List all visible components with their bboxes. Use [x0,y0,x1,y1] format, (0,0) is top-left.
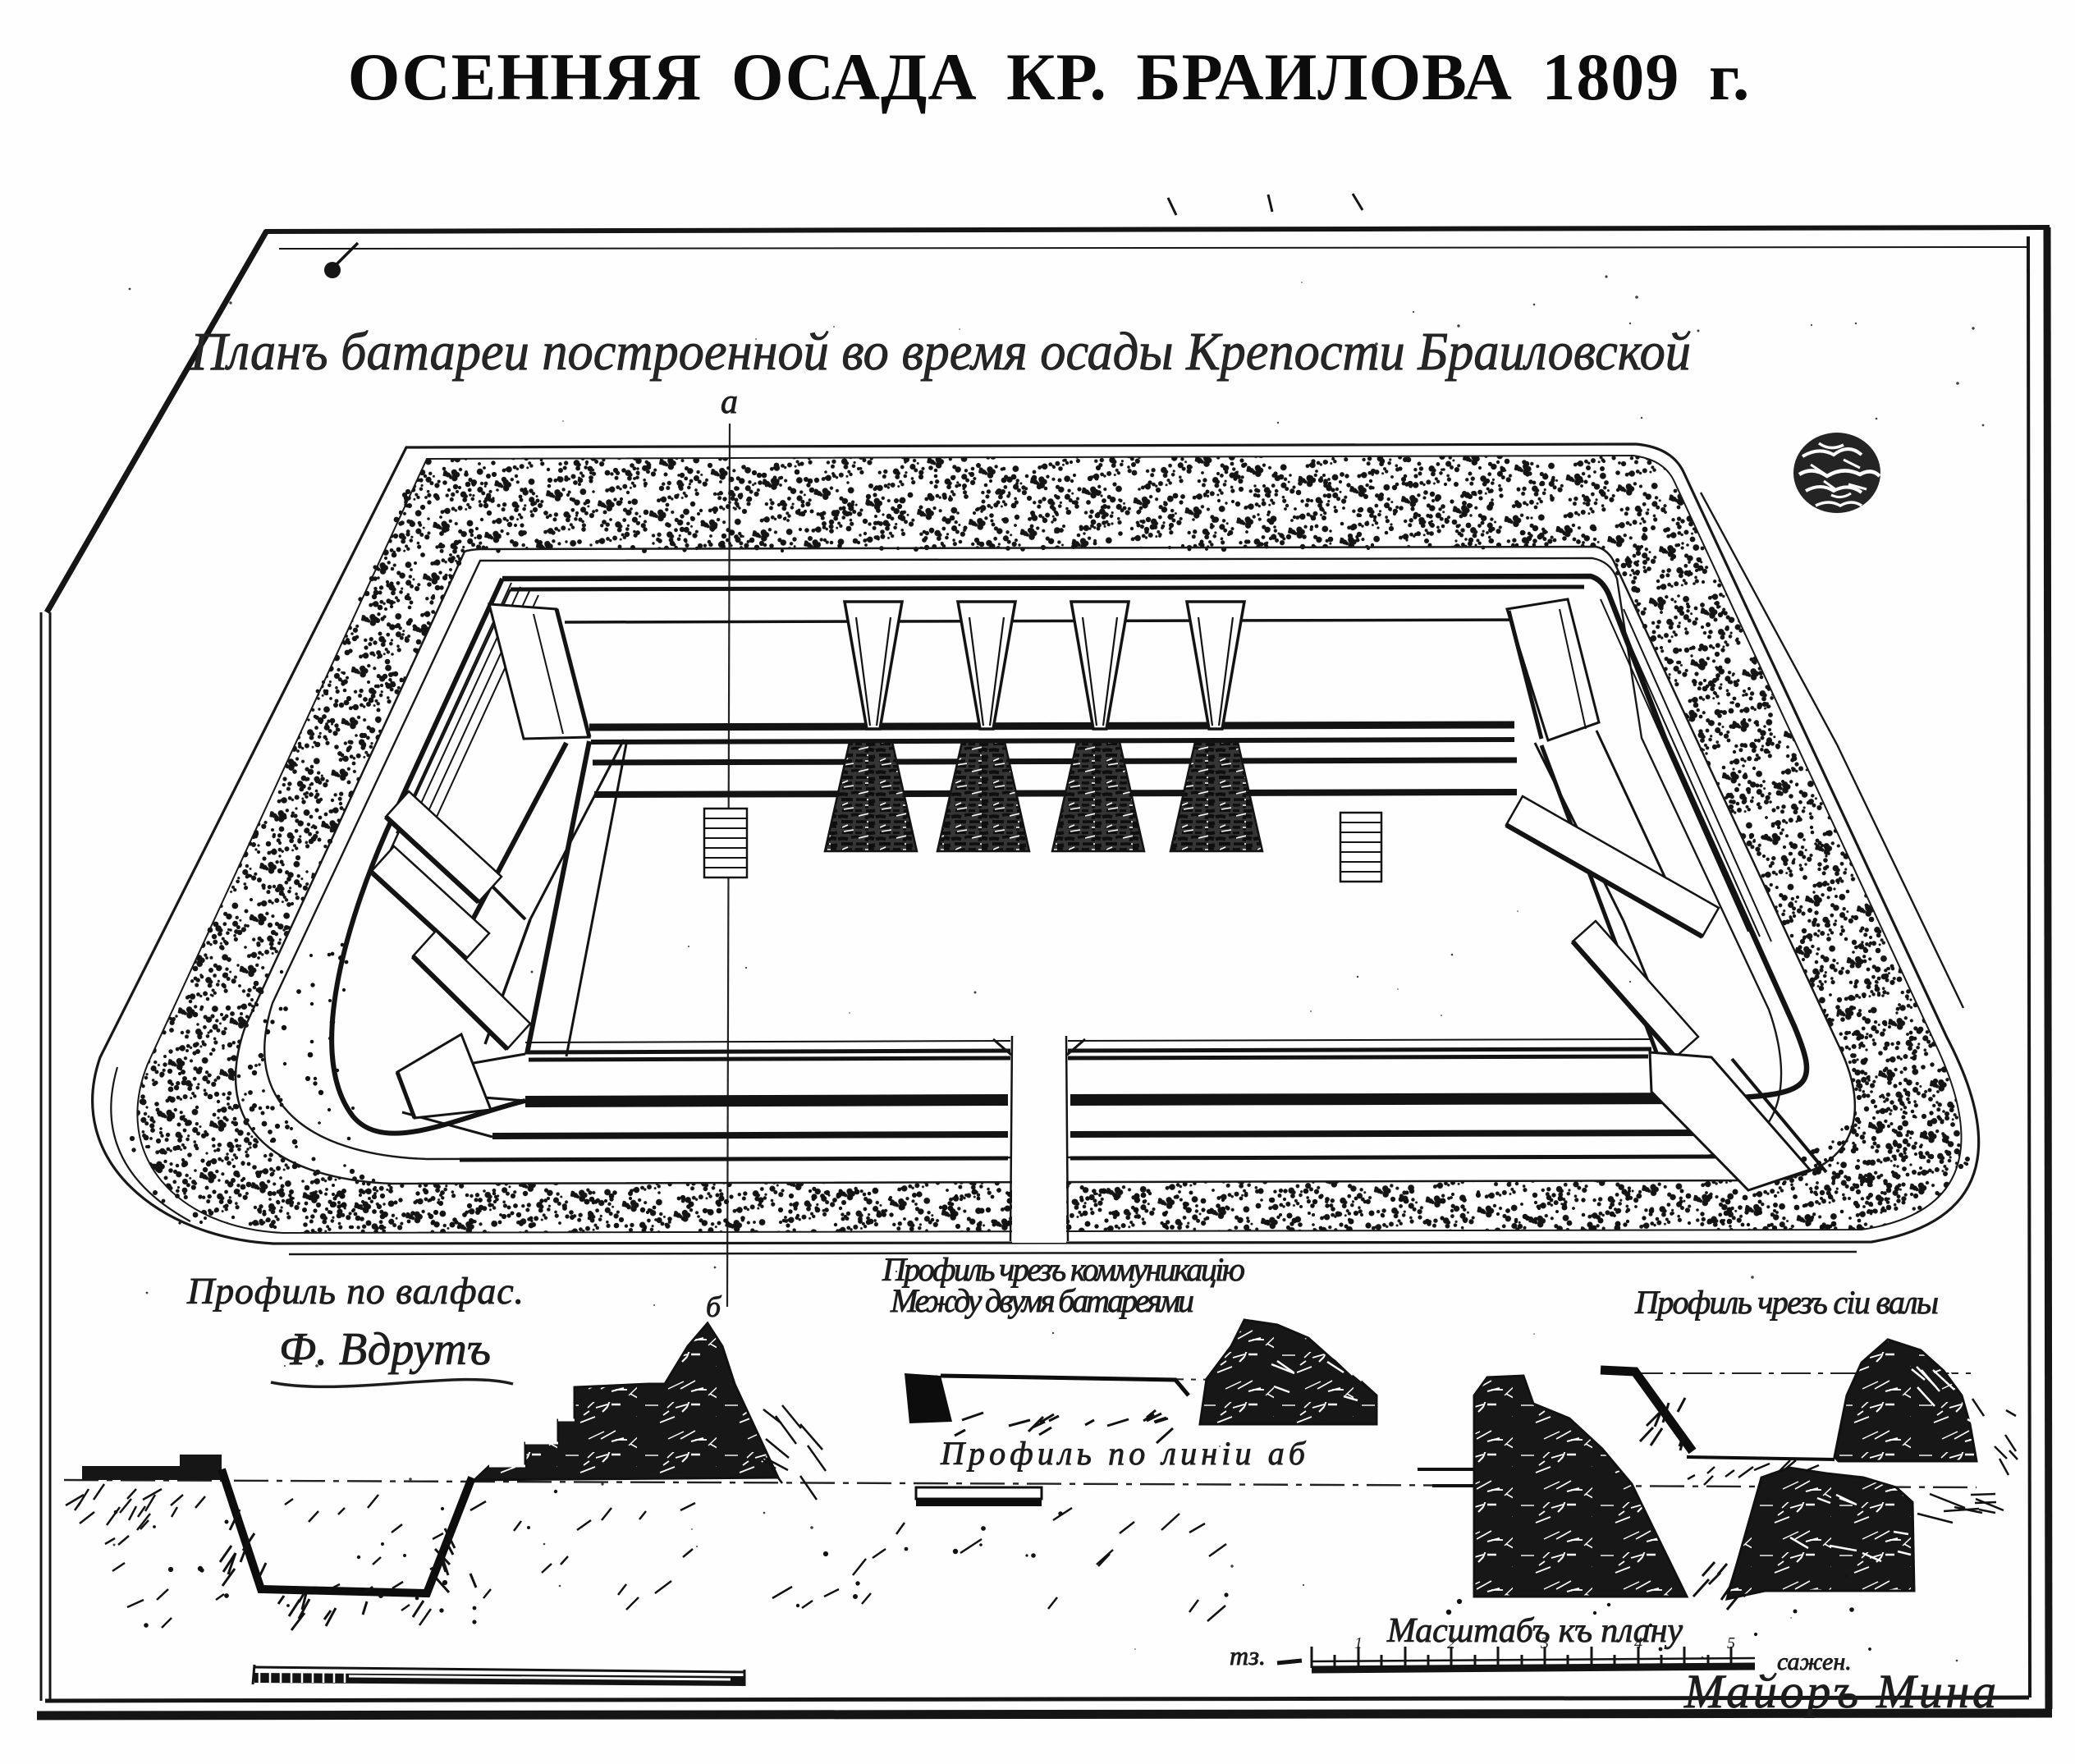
svg-text:Между двумя батареями: Между двумя батареями [890,1282,1194,1319]
svg-text:б: б [706,1290,722,1323]
svg-text:Майоръ Мина: Майоръ Мина [1683,1665,1996,1718]
svg-text:Профиль по валфас.: Профиль по валфас. [186,1270,524,1312]
svg-text:Профиль чрезъ сiи валы: Профиль чрезъ сiи валы [1634,1284,1939,1321]
svg-text:4: 4 [1634,1634,1642,1652]
svg-text:тз.: тз. [1230,1641,1266,1670]
svg-text:2: 2 [1447,1634,1455,1652]
svg-text:3: 3 [1540,1634,1549,1652]
svg-text:ОСЕННЯЯ ОСАДА КР. БРАИЛОВА 180: ОСЕННЯЯ ОСАДА КР. БРАИЛОВА 1809 г. [348,39,1751,114]
svg-text:Ф. Вдрутъ: Ф. Вдрутъ [279,1324,491,1375]
svg-text:5: 5 [1727,1634,1735,1652]
svg-text:а: а [721,383,738,421]
svg-text:1: 1 [1354,1634,1363,1652]
svg-text:Планъ батареи построенной во в: Планъ батареи построенной во время осады… [190,322,1691,382]
